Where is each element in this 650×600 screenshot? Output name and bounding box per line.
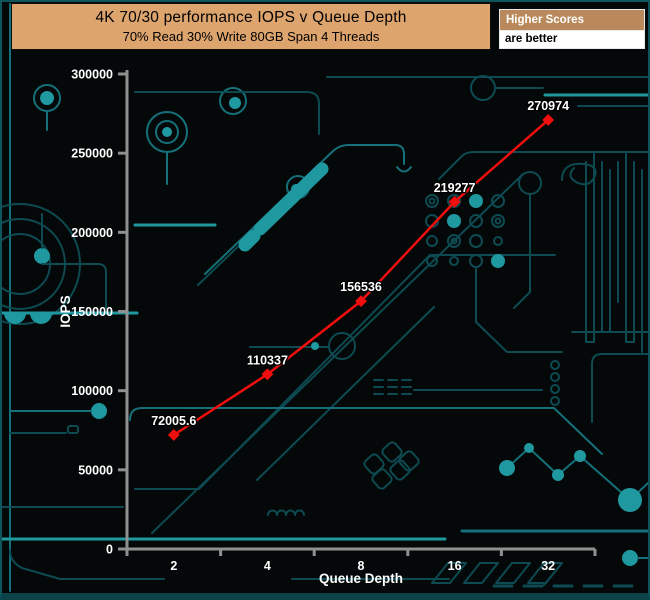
y-axis-tick-label: 100000 bbox=[71, 384, 113, 398]
data-point-label: 72005.6 bbox=[151, 414, 196, 428]
x-axis-tick-label: 32 bbox=[541, 559, 555, 573]
legend-heading: Higher Scores bbox=[500, 10, 644, 31]
y-axis-tick-label: 200000 bbox=[71, 226, 113, 240]
legend-subheading: are better bbox=[500, 31, 644, 48]
y-axis-tick-label: 50000 bbox=[78, 463, 113, 477]
x-axis-title: Queue Depth bbox=[319, 571, 403, 586]
y-axis-tick-label: 250000 bbox=[71, 147, 113, 161]
x-axis-tick-label: 16 bbox=[448, 559, 462, 573]
y-axis-tick-label: 0 bbox=[106, 543, 113, 557]
x-axis-tick-label: 2 bbox=[170, 559, 177, 573]
y-axis-title: IOPS bbox=[58, 295, 73, 327]
y-axis-tick-label: 300000 bbox=[71, 68, 113, 82]
data-point-label: 156536 bbox=[340, 280, 382, 294]
screenshot-root: 0500001000001500002000002500003000002481… bbox=[0, 0, 650, 600]
y-axis-tick-label: 150000 bbox=[71, 305, 113, 319]
legend-note: Higher Scores are better bbox=[499, 9, 645, 49]
chart-title-box: 4K 70/30 performance IOPS v Queue Depth … bbox=[12, 4, 490, 49]
x-axis-tick-label: 4 bbox=[264, 559, 271, 573]
chart-subtitle: 70% Read 30% Write 80GB Span 4 Threads bbox=[12, 29, 490, 44]
data-point-label: 110337 bbox=[247, 353, 288, 367]
data-point-label: 270974 bbox=[527, 99, 569, 113]
iops-line-chart: 0500001000001500002000002500003000002481… bbox=[2, 2, 648, 593]
data-point-label: 219277 bbox=[434, 181, 476, 195]
series-line bbox=[174, 120, 548, 435]
chart-title: 4K 70/30 performance IOPS v Queue Depth bbox=[12, 9, 490, 27]
